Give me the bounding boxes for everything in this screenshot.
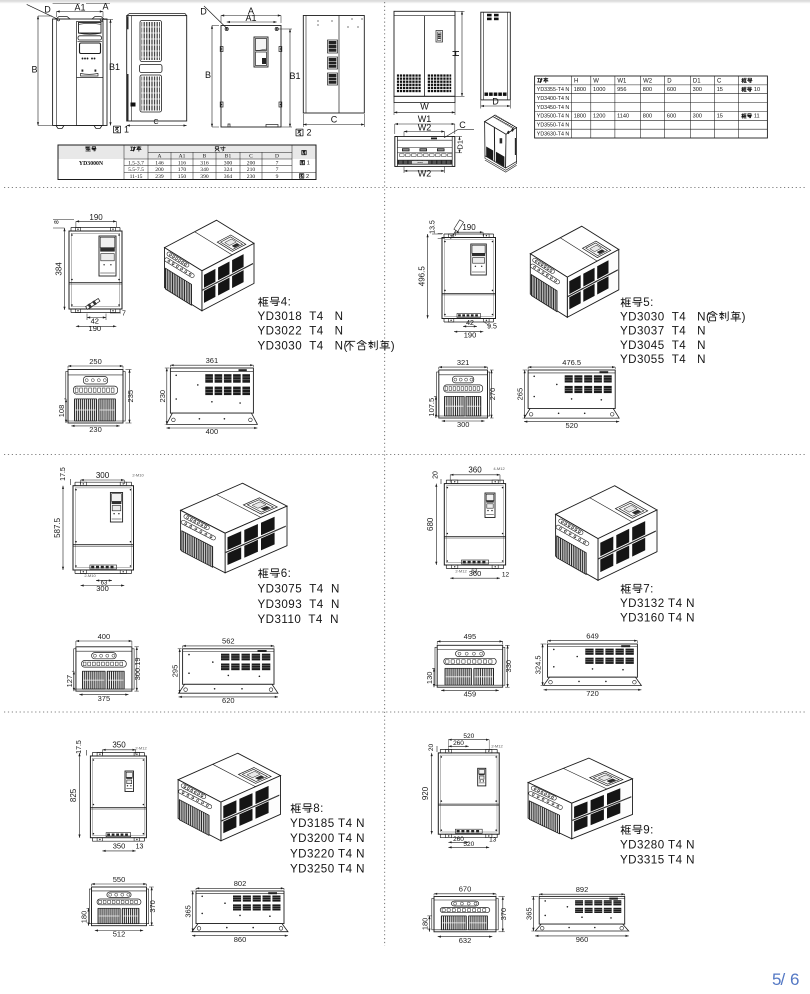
svg-text:300.19: 300.19 <box>133 657 142 680</box>
svg-text:180: 180 <box>420 918 429 931</box>
svg-text:127: 127 <box>65 675 74 688</box>
svg-text:1800: 1800 <box>574 87 586 93</box>
svg-text:260: 260 <box>453 740 464 747</box>
svg-text:7: 7 <box>122 311 126 318</box>
svg-text:D: D <box>200 7 207 17</box>
svg-text:190: 190 <box>89 324 102 333</box>
svg-text:13: 13 <box>489 837 497 844</box>
svg-text:384: 384 <box>55 262 64 276</box>
svg-text:2-M12: 2-M12 <box>135 746 147 751</box>
svg-text:YD3022 T4 N: YD3022 T4 N <box>258 325 344 338</box>
svg-text:170: 170 <box>178 167 187 173</box>
svg-text:960: 960 <box>576 935 589 944</box>
svg-text:W2: W2 <box>418 123 432 133</box>
svg-text:550: 550 <box>113 875 126 884</box>
svg-text:370: 370 <box>148 900 157 913</box>
svg-text:YD3185 T4 N: YD3185 T4 N <box>290 817 365 830</box>
svg-text:): ) <box>391 339 395 352</box>
svg-text:W2: W2 <box>643 78 653 84</box>
svg-text:C: C <box>153 119 158 126</box>
svg-text:9: 9 <box>276 174 279 180</box>
svg-text:12: 12 <box>502 572 510 579</box>
svg-text:17.5: 17.5 <box>60 467 67 481</box>
svg-text:D1: D1 <box>455 140 464 150</box>
svg-text:365: 365 <box>524 907 533 920</box>
svg-text:1800: 1800 <box>574 114 586 120</box>
svg-text:300: 300 <box>224 160 233 166</box>
svg-text:802: 802 <box>234 879 247 888</box>
svg-text:1: 1 <box>122 125 130 135</box>
svg-text:146: 146 <box>155 160 164 166</box>
svg-text:5:: 5: <box>643 296 654 309</box>
svg-text:2: 2 <box>304 128 312 138</box>
svg-text:A1: A1 <box>245 13 256 23</box>
svg-text:YD3280 T4 N: YD3280 T4 N <box>620 839 695 852</box>
svg-text:YD3055 T4 N: YD3055 T4 N <box>620 353 706 366</box>
svg-text:YD3000N: YD3000N <box>79 161 104 167</box>
svg-text:230: 230 <box>158 390 167 403</box>
svg-text:2: 2 <box>304 174 309 180</box>
svg-text:9.5: 9.5 <box>487 324 497 331</box>
svg-text:17.5: 17.5 <box>76 740 83 754</box>
svg-text:130: 130 <box>425 672 434 685</box>
svg-text:295: 295 <box>171 665 180 678</box>
svg-text:365: 365 <box>184 905 193 918</box>
svg-text:520: 520 <box>463 733 474 740</box>
svg-text:1.5-3.7: 1.5-3.7 <box>128 160 144 166</box>
svg-text:YD3400-T4 N: YD3400-T4 N <box>537 96 570 102</box>
svg-text:476.5: 476.5 <box>562 358 581 367</box>
svg-text:7: 7 <box>276 167 279 173</box>
svg-text:B: B <box>205 70 211 80</box>
svg-text:459: 459 <box>464 690 477 699</box>
svg-text:B1: B1 <box>109 62 120 72</box>
svg-text:860: 860 <box>234 935 247 944</box>
svg-text:632: 632 <box>459 936 472 945</box>
svg-text:8:: 8: <box>313 802 324 815</box>
svg-text:300: 300 <box>693 114 702 120</box>
svg-text:4-M12: 4-M12 <box>493 466 505 471</box>
svg-text:265: 265 <box>516 388 525 401</box>
svg-text:20: 20 <box>433 471 440 479</box>
svg-text:321: 321 <box>457 358 470 367</box>
svg-text:364: 364 <box>224 174 233 180</box>
svg-text:1200: 1200 <box>593 114 605 120</box>
svg-text:A1: A1 <box>74 3 85 13</box>
svg-text:250: 250 <box>89 357 102 366</box>
svg-text:7:: 7: <box>643 583 654 596</box>
svg-text:YD3093 T4 N: YD3093 T4 N <box>258 598 340 611</box>
svg-text:390: 390 <box>200 174 209 180</box>
svg-text:375: 375 <box>98 694 111 703</box>
svg-text:15: 15 <box>717 87 723 93</box>
svg-text:1000: 1000 <box>593 87 605 93</box>
svg-text:B: B <box>203 154 207 160</box>
svg-text:W: W <box>420 102 429 112</box>
svg-text:D1: D1 <box>693 78 701 84</box>
svg-text:YD3030 T4 N(: YD3030 T4 N( <box>258 339 348 352</box>
svg-text:316: 316 <box>200 160 209 166</box>
svg-text:▪▪▪▪▪: ▪▪▪▪▪ <box>417 160 422 164</box>
svg-text:300: 300 <box>457 420 470 429</box>
svg-text:230: 230 <box>89 425 102 434</box>
svg-text:11-15: 11-15 <box>130 174 143 180</box>
svg-text:YD3630-T4 N: YD3630-T4 N <box>537 132 570 138</box>
svg-text:400: 400 <box>206 427 219 436</box>
svg-text:13.5: 13.5 <box>430 220 437 234</box>
svg-text:D: D <box>492 97 499 107</box>
svg-text:YD3355-T4 N: YD3355-T4 N <box>537 87 570 93</box>
svg-text:10: 10 <box>752 87 760 93</box>
svg-text:324.5: 324.5 <box>534 655 543 674</box>
svg-text:350: 350 <box>113 842 126 851</box>
svg-text:42: 42 <box>466 320 474 327</box>
svg-text:300: 300 <box>96 471 110 480</box>
svg-text:C: C <box>249 154 253 160</box>
svg-text:116: 116 <box>178 160 186 166</box>
svg-text:C: C <box>717 78 722 84</box>
svg-text:370: 370 <box>499 908 508 921</box>
svg-text:YD3315 T4 N: YD3315 T4 N <box>620 854 695 867</box>
svg-text:892: 892 <box>576 885 589 894</box>
svg-text:512: 512 <box>113 930 126 939</box>
svg-text:670: 670 <box>459 885 472 894</box>
svg-text:D: D <box>667 78 672 84</box>
svg-text:520: 520 <box>463 841 474 848</box>
svg-text:270: 270 <box>488 388 497 401</box>
svg-text:B1: B1 <box>225 154 232 160</box>
svg-text:587.5: 587.5 <box>53 517 62 538</box>
svg-text:H: H <box>574 78 578 84</box>
svg-text:800: 800 <box>643 87 652 93</box>
svg-text:YD3220 T4 N: YD3220 T4 N <box>290 847 365 860</box>
svg-text:YD3250 T4 N: YD3250 T4 N <box>290 862 365 875</box>
svg-text:360: 360 <box>469 569 482 578</box>
svg-text:190: 190 <box>464 331 477 340</box>
svg-text:11: 11 <box>752 114 759 120</box>
svg-text:600: 600 <box>667 114 676 120</box>
svg-text:YD3200 T4 N: YD3200 T4 N <box>290 832 365 845</box>
svg-text:800: 800 <box>643 114 652 120</box>
svg-text:235: 235 <box>126 390 135 403</box>
svg-text:620: 620 <box>222 696 235 705</box>
svg-text:108: 108 <box>57 405 66 418</box>
svg-text:A: A <box>158 154 162 160</box>
svg-text:13: 13 <box>136 844 144 851</box>
svg-text:300: 300 <box>96 584 109 593</box>
svg-text:YD3450-T4 N: YD3450-T4 N <box>537 105 570 111</box>
svg-text:2-M10: 2-M10 <box>84 573 96 578</box>
svg-text:20: 20 <box>428 744 435 752</box>
svg-text:/ 6: / 6 <box>781 970 800 989</box>
svg-text:H: H <box>451 50 461 57</box>
svg-text:1140: 1140 <box>617 114 629 120</box>
svg-text:9:: 9: <box>643 824 654 837</box>
svg-text:YD3160 T4 N: YD3160 T4 N <box>620 612 695 625</box>
svg-text:2-M12: 2-M12 <box>455 569 467 574</box>
svg-text:2-M10: 2-M10 <box>132 473 144 478</box>
svg-text:YD3018 T4 N: YD3018 T4 N <box>258 310 344 323</box>
svg-text:825: 825 <box>69 788 78 802</box>
svg-text:230: 230 <box>247 174 256 180</box>
svg-text:180: 180 <box>80 911 89 924</box>
svg-text:A: A <box>102 2 108 12</box>
svg-text:200: 200 <box>155 167 164 173</box>
svg-text:W2: W2 <box>418 169 432 179</box>
svg-text:150: 150 <box>178 174 187 180</box>
svg-text:6:: 6: <box>281 567 292 580</box>
svg-text:400: 400 <box>98 632 111 641</box>
svg-text:7: 7 <box>276 160 279 166</box>
svg-text:330: 330 <box>504 660 513 673</box>
svg-text:680: 680 <box>426 517 435 531</box>
svg-text:2-M12: 2-M12 <box>491 744 503 749</box>
svg-text:200: 200 <box>247 160 256 166</box>
svg-text:5.5-7.5: 5.5-7.5 <box>128 167 144 173</box>
svg-text:360: 360 <box>468 466 482 475</box>
svg-text:8: 8 <box>54 220 61 224</box>
svg-text:190: 190 <box>89 213 103 222</box>
svg-text:W1: W1 <box>617 78 627 84</box>
svg-text:4:: 4: <box>281 296 292 309</box>
svg-text:YD3030 T4 N(: YD3030 T4 N( <box>620 310 710 323</box>
svg-text:C: C <box>331 115 338 125</box>
svg-text:649: 649 <box>586 632 599 641</box>
svg-text:YD3045 T4 N: YD3045 T4 N <box>620 339 706 352</box>
svg-text:YD3550-T4 N: YD3550-T4 N <box>537 123 570 129</box>
svg-text:956: 956 <box>617 87 626 93</box>
svg-text:350: 350 <box>112 741 126 750</box>
svg-text:340: 340 <box>200 167 209 173</box>
svg-text:B1: B1 <box>289 71 300 81</box>
svg-text:496.5: 496.5 <box>418 266 427 287</box>
svg-text:210: 210 <box>247 167 256 173</box>
svg-text:B: B <box>31 65 37 75</box>
svg-text:15: 15 <box>717 114 723 120</box>
svg-text:YD3037 T4 N: YD3037 T4 N <box>620 325 706 338</box>
svg-text:): ) <box>742 310 746 323</box>
svg-text:1: 1 <box>305 161 310 167</box>
svg-text:A1: A1 <box>179 154 186 160</box>
svg-text:300: 300 <box>693 87 702 93</box>
svg-text:107.5: 107.5 <box>427 398 436 417</box>
svg-text:C: C <box>459 120 466 130</box>
svg-text:562: 562 <box>222 637 235 646</box>
svg-text:720: 720 <box>586 689 599 698</box>
svg-text:YD3075 T4 N: YD3075 T4 N <box>258 582 340 595</box>
svg-text:YD3500-T4 N: YD3500-T4 N <box>537 114 570 120</box>
svg-text:520: 520 <box>565 421 578 430</box>
svg-text:920: 920 <box>421 786 430 800</box>
svg-text:495: 495 <box>464 632 477 641</box>
svg-text:190: 190 <box>462 223 476 232</box>
svg-text:YD3132 T4 N: YD3132 T4 N <box>620 597 695 610</box>
svg-text:361: 361 <box>206 356 219 365</box>
svg-text:D: D <box>44 5 51 15</box>
svg-text:YD3110 T4 N: YD3110 T4 N <box>258 613 339 626</box>
svg-text:324: 324 <box>224 167 233 173</box>
svg-text:D: D <box>275 154 279 160</box>
svg-text:W: W <box>593 78 599 84</box>
svg-text:239: 239 <box>155 174 164 180</box>
svg-text:600: 600 <box>667 87 676 93</box>
